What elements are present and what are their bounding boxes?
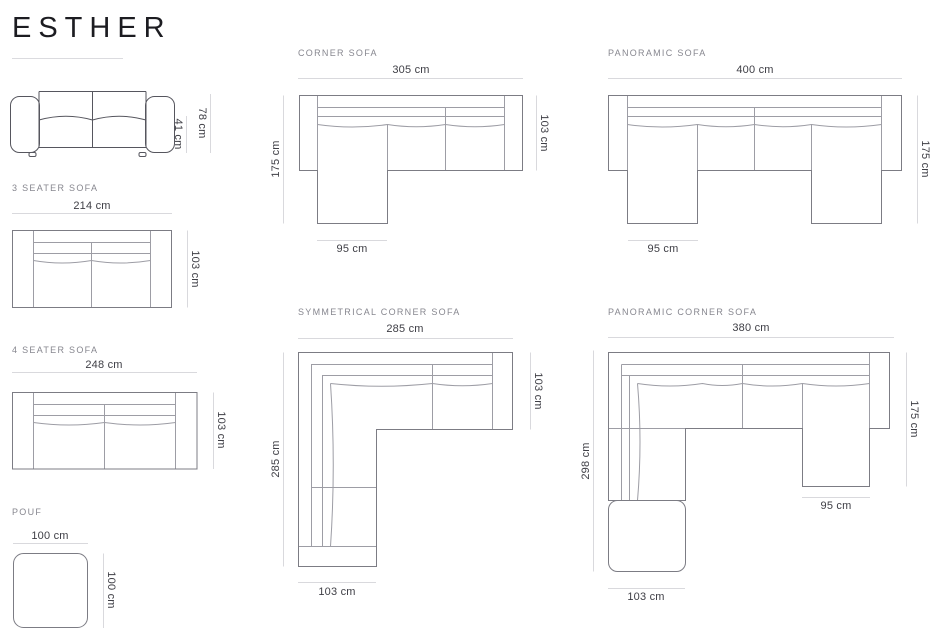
panoramic-corner-chaise-label: 95 cm bbox=[821, 500, 852, 512]
panoramic-corner-left-depth-label: 298 cm bbox=[580, 442, 592, 479]
pouf-dim-lines bbox=[13, 544, 104, 629]
panoramic-corner-drawing bbox=[609, 353, 890, 572]
section-title-panoramic-corner: PANORAMIC CORNER SOFA bbox=[608, 307, 757, 317]
symmetrical-corner-drawing bbox=[299, 353, 513, 567]
front-view-total-height-label: 78 cm bbox=[196, 108, 208, 139]
corner-right-depth-label: 103 cm bbox=[538, 114, 550, 151]
pouf-depth-label: 100 cm bbox=[105, 571, 117, 608]
corner-sofa-drawing bbox=[300, 96, 523, 224]
symmetrical-right-depth-label: 103 cm bbox=[532, 372, 544, 409]
pouf-width-label: 100 cm bbox=[31, 530, 68, 542]
symmetrical-width-label: 285 cm bbox=[386, 323, 423, 335]
panoramic-width-label: 400 cm bbox=[736, 64, 773, 76]
three-seater-depth-label: 103 cm bbox=[189, 250, 201, 287]
symmetrical-left-depth-label: 285 cm bbox=[270, 440, 282, 477]
three-seater-dim-lines bbox=[12, 214, 188, 308]
four-seater-dim-lines bbox=[12, 373, 214, 470]
front-view-sofa-drawing bbox=[11, 92, 175, 157]
three-seater-drawing bbox=[13, 231, 172, 308]
four-seater-depth-label: 103 cm bbox=[215, 411, 227, 448]
panoramic-chaise-label: 95 cm bbox=[648, 243, 679, 255]
corner-left-depth-label: 175 cm bbox=[270, 140, 282, 177]
pouf-drawing bbox=[14, 554, 88, 628]
dimension-sheet: ESTHER bbox=[0, 0, 930, 630]
panoramic-sofa-drawing bbox=[609, 96, 902, 224]
panoramic-sofa-dim-lines bbox=[608, 79, 918, 241]
panoramic-corner-right-depth-label: 175 cm bbox=[908, 400, 920, 437]
front-view-seat-height-label: 41 cm bbox=[172, 119, 184, 150]
section-title-corner: CORNER SOFA bbox=[298, 48, 378, 58]
section-title-pouf: POUF bbox=[12, 507, 42, 517]
corner-chaise-label: 95 cm bbox=[337, 243, 368, 255]
corner-sofa-dim-lines bbox=[284, 79, 537, 241]
corner-width-label: 305 cm bbox=[392, 64, 429, 76]
panoramic-right-depth-label: 175 cm bbox=[919, 140, 930, 177]
section-title-three-seater: 3 SEATER SOFA bbox=[12, 183, 98, 193]
panoramic-corner-width-label: 380 cm bbox=[732, 322, 769, 334]
section-title-four-seater: 4 SEATER SOFA bbox=[12, 345, 98, 355]
three-seater-width-label: 214 cm bbox=[73, 200, 110, 212]
section-title-panoramic: PANORAMIC SOFA bbox=[608, 48, 707, 58]
diagrams-linework bbox=[0, 0, 930, 630]
symmetrical-bottom-width-label: 103 cm bbox=[318, 586, 355, 598]
section-title-symmetrical-corner: SYMMETRICAL CORNER SOFA bbox=[298, 307, 461, 317]
panoramic-corner-bottom-width-label: 103 cm bbox=[627, 591, 664, 603]
four-seater-drawing bbox=[13, 393, 198, 470]
four-seater-width-label: 248 cm bbox=[85, 359, 122, 371]
